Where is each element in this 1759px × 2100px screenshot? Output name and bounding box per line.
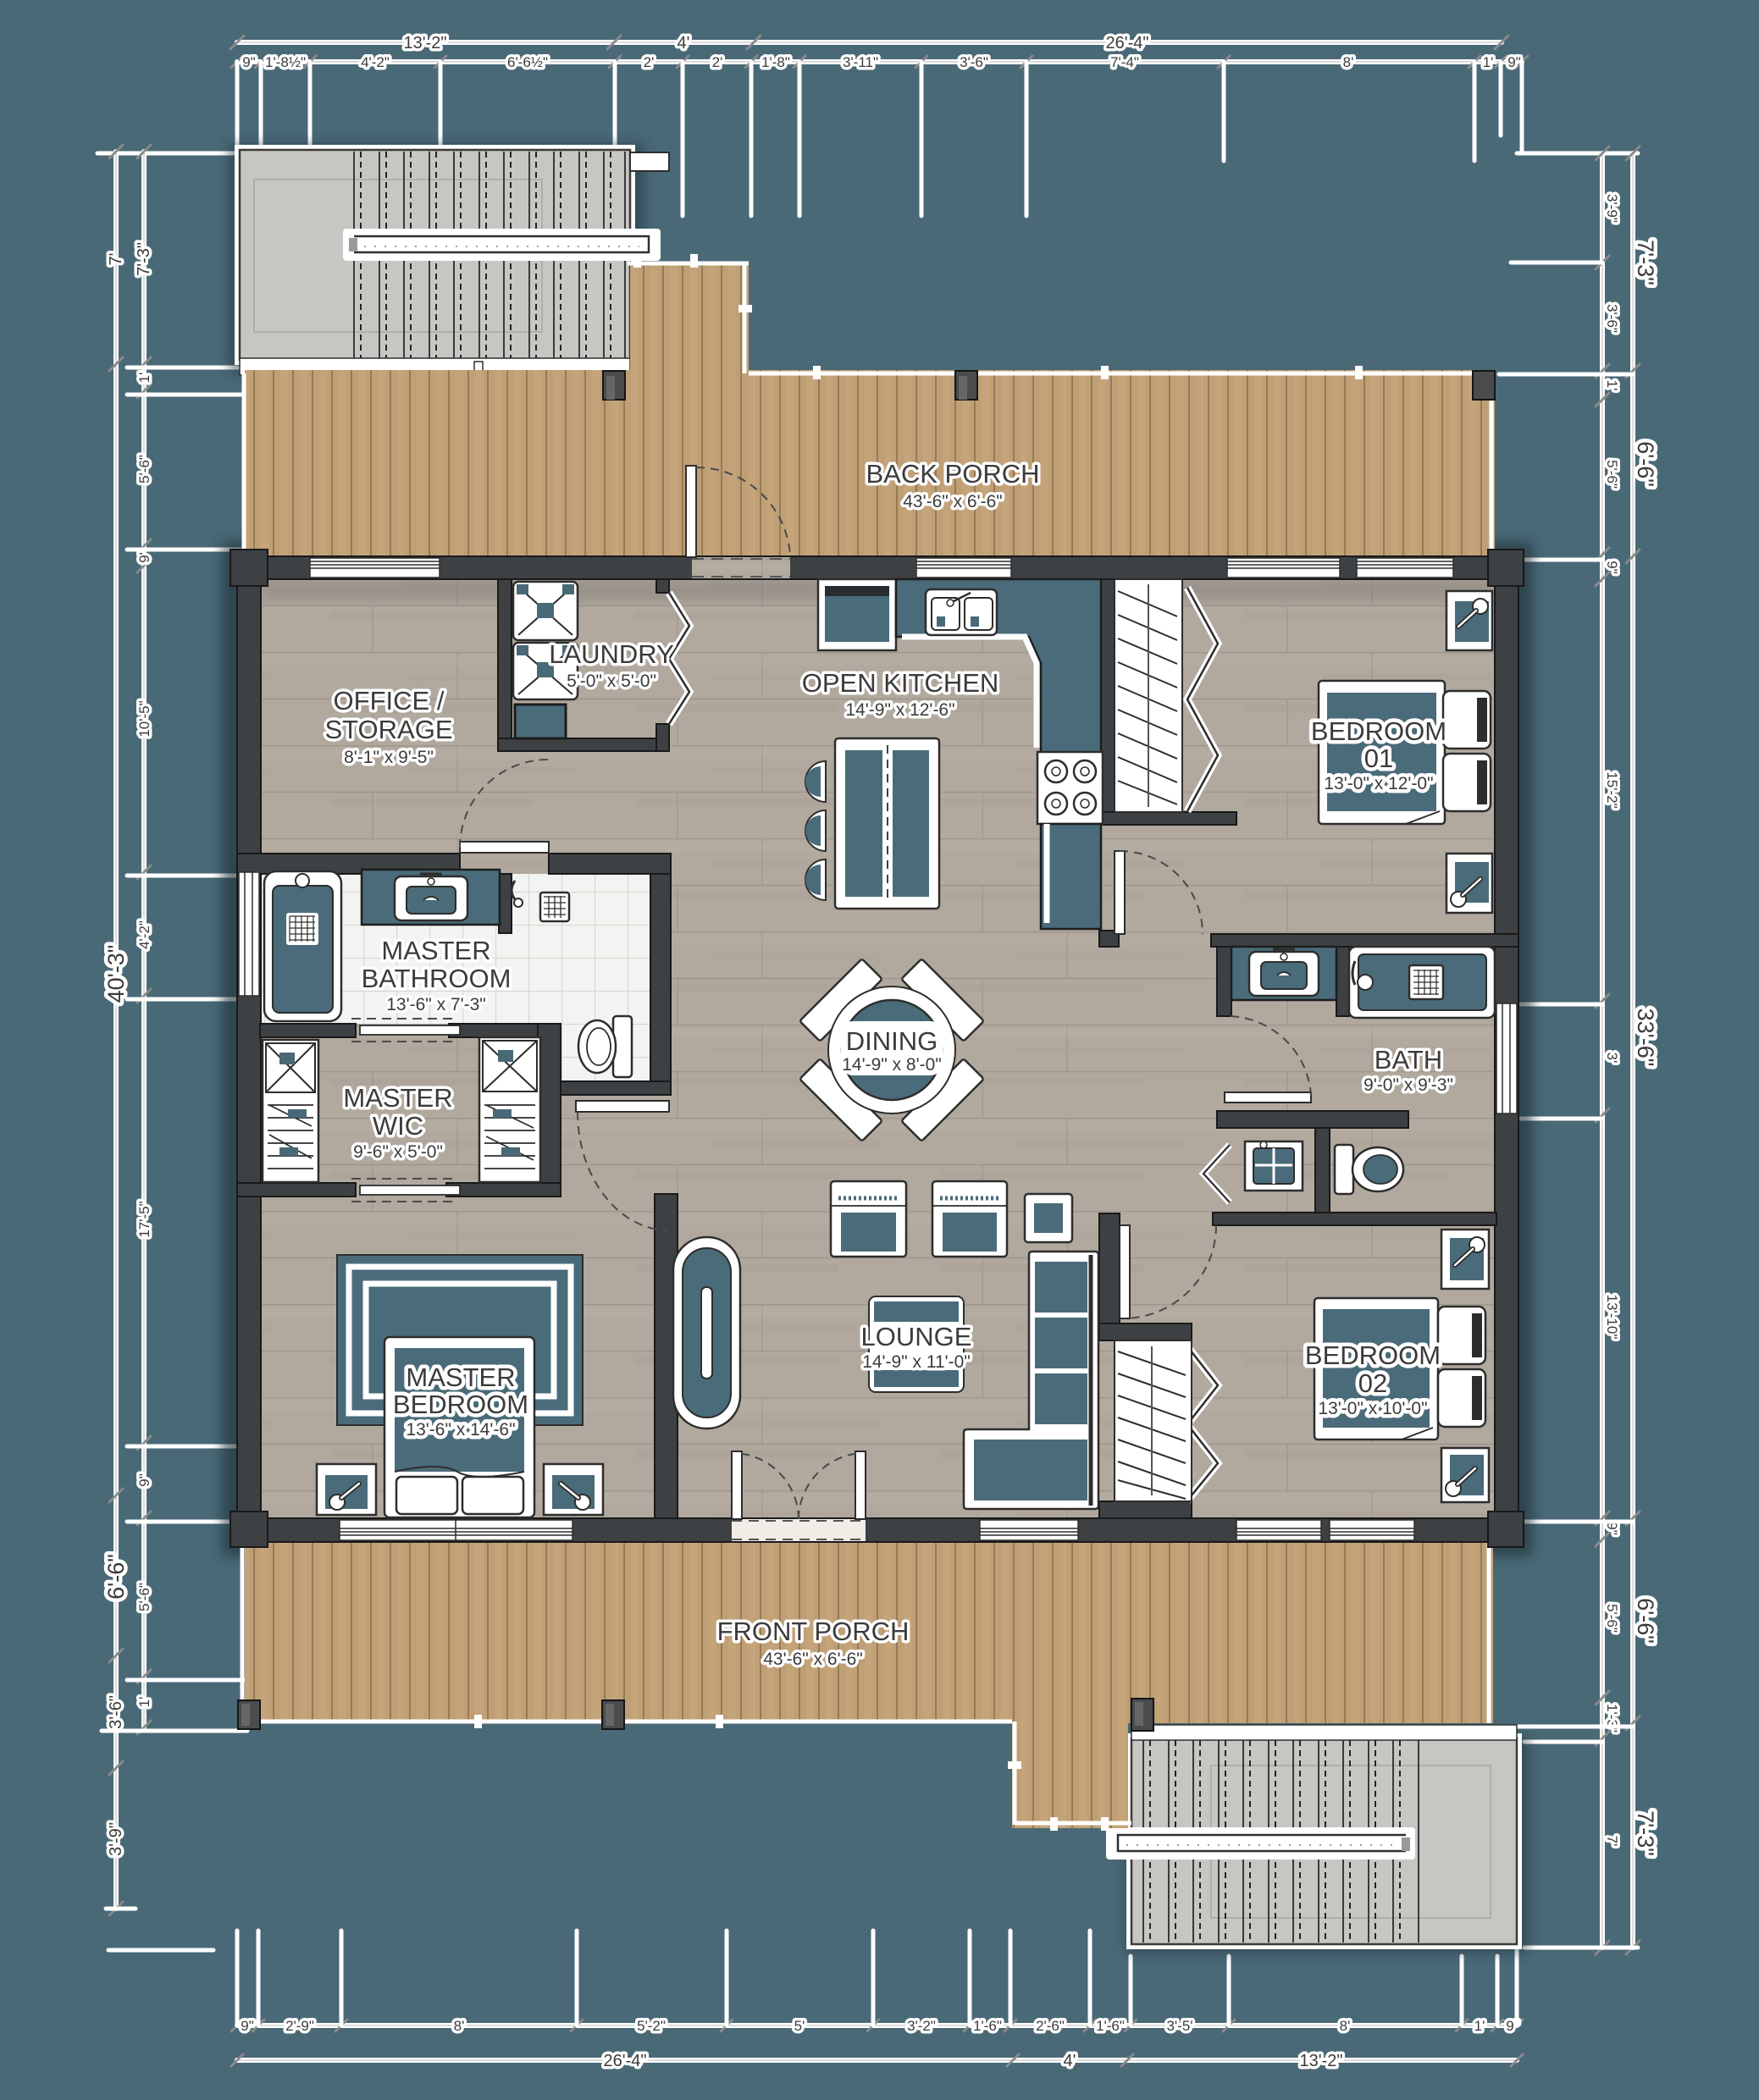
svg-text:3': 3' bbox=[1604, 1053, 1620, 1064]
svg-text:DINING: DINING bbox=[846, 1026, 938, 1056]
svg-text:43'-6" x 6'-6": 43'-6" x 6'-6" bbox=[763, 1650, 862, 1669]
svg-text:9": 9" bbox=[136, 550, 152, 563]
svg-text:OPEN KITCHEN: OPEN KITCHEN bbox=[802, 668, 999, 698]
svg-text:13'-10": 13'-10" bbox=[1604, 1295, 1620, 1340]
svg-text:BATH: BATH bbox=[1375, 1045, 1442, 1075]
svg-text:5'-0" x 5'-0": 5'-0" x 5'-0" bbox=[567, 671, 656, 691]
svg-text:13'-0" x 10'-0": 13'-0" x 10'-0" bbox=[1318, 1399, 1427, 1418]
svg-text:4': 4' bbox=[678, 34, 690, 52]
svg-text:3'-2": 3'-2" bbox=[907, 2018, 936, 2034]
svg-text:8': 8' bbox=[1343, 54, 1354, 70]
svg-text:1'-8": 1'-8" bbox=[761, 54, 790, 70]
svg-text:1'-8½": 1'-8½" bbox=[265, 54, 306, 70]
svg-text:6'-6": 6'-6" bbox=[103, 1554, 129, 1600]
svg-text:3'-11": 3'-11" bbox=[843, 54, 878, 70]
svg-text:STORAGE: STORAGE bbox=[324, 715, 452, 744]
svg-text:3'-5': 3'-5' bbox=[1166, 2018, 1192, 2034]
svg-text:2': 2' bbox=[644, 54, 655, 70]
svg-text:3'-6": 3'-6" bbox=[107, 1695, 125, 1729]
svg-text:8'-1" x 9'-5": 8'-1" x 9'-5" bbox=[344, 748, 434, 767]
svg-text:6'-6½": 6'-6½" bbox=[507, 54, 548, 70]
svg-text:OFFICE /: OFFICE / bbox=[334, 686, 445, 716]
svg-text:3'-6": 3'-6" bbox=[960, 54, 988, 70]
svg-text:BEDROOM: BEDROOM bbox=[393, 1390, 528, 1419]
svg-text:4'-2": 4'-2" bbox=[136, 920, 152, 949]
svg-text:7': 7' bbox=[1604, 1836, 1620, 1847]
svg-text:5': 5' bbox=[794, 2018, 805, 2034]
svg-text:7'-4": 7'-4" bbox=[1110, 54, 1139, 70]
svg-text:6'-6": 6'-6" bbox=[1633, 441, 1658, 487]
svg-text:WIC: WIC bbox=[373, 1111, 423, 1141]
svg-text:1': 1' bbox=[136, 1697, 152, 1708]
svg-text:LOUNGE: LOUNGE bbox=[861, 1322, 972, 1351]
svg-text:6'-6": 6'-6" bbox=[1633, 1598, 1658, 1644]
svg-text:1': 1' bbox=[1604, 380, 1620, 391]
svg-text:BEDROOM: BEDROOM bbox=[1305, 1340, 1441, 1370]
svg-text:9'-6" x 5'-0": 9'-6" x 5'-0" bbox=[353, 1142, 443, 1162]
svg-text:BATHROOM: BATHROOM bbox=[362, 964, 512, 993]
svg-text:2'-6": 2'-6" bbox=[1036, 2018, 1065, 2034]
svg-text:9": 9" bbox=[241, 2018, 254, 2034]
svg-text:LAUNDRY: LAUNDRY bbox=[549, 639, 674, 669]
svg-text:7'-3": 7'-3" bbox=[1633, 1810, 1658, 1856]
svg-text:1'-6": 1'-6" bbox=[1096, 2018, 1125, 2034]
svg-text:FRONT PORCH: FRONT PORCH bbox=[717, 1616, 910, 1646]
svg-text:9": 9" bbox=[1604, 1522, 1620, 1535]
svg-text:13'-2": 13'-2" bbox=[1300, 2052, 1343, 2070]
svg-text:7': 7' bbox=[107, 253, 125, 266]
svg-text:5'-2": 5'-2" bbox=[637, 2018, 666, 2034]
svg-text:9": 9" bbox=[136, 1473, 152, 1487]
svg-text:3'-9": 3'-9" bbox=[1604, 194, 1620, 223]
svg-text:5'-6": 5'-6" bbox=[1604, 460, 1620, 489]
svg-text:BACK PORCH: BACK PORCH bbox=[866, 459, 1040, 489]
svg-text:5'-6": 5'-6" bbox=[136, 455, 152, 484]
svg-text:MASTER: MASTER bbox=[343, 1083, 452, 1113]
svg-text:9": 9" bbox=[242, 54, 256, 70]
svg-text:14'-9" x 11'-0": 14'-9" x 11'-0" bbox=[862, 1352, 971, 1372]
svg-text:7'-3": 7'-3" bbox=[135, 242, 153, 276]
svg-text:02: 02 bbox=[1358, 1368, 1387, 1398]
svg-text:1': 1' bbox=[1474, 2018, 1485, 2034]
svg-text:43'-6" x 6'-6": 43'-6" x 6'-6" bbox=[903, 492, 1002, 511]
svg-text:13'-2": 13'-2" bbox=[404, 34, 447, 52]
svg-text:5'-6": 5'-6" bbox=[1604, 1604, 1620, 1633]
svg-text:4': 4' bbox=[1064, 2052, 1076, 2070]
svg-text:2': 2' bbox=[712, 54, 723, 70]
svg-text:13'-6" x 14'-6": 13'-6" x 14'-6" bbox=[406, 1420, 515, 1440]
svg-text:01: 01 bbox=[1364, 743, 1393, 773]
svg-text:1'-6": 1'-6" bbox=[973, 2018, 1002, 2034]
svg-text:26'-4": 26'-4" bbox=[1106, 34, 1149, 52]
svg-text:14'-9" x 12'-6": 14'-9" x 12'-6" bbox=[845, 700, 954, 720]
svg-text:3'-6": 3'-6" bbox=[1604, 304, 1620, 333]
svg-text:8': 8' bbox=[454, 2018, 465, 2034]
svg-text:1': 1' bbox=[1483, 54, 1494, 70]
svg-text:9": 9" bbox=[1507, 54, 1521, 70]
svg-text:33'-6": 33'-6" bbox=[1633, 1009, 1658, 1067]
svg-text:10'-5": 10'-5" bbox=[136, 700, 152, 737]
svg-text:26'-4": 26'-4" bbox=[604, 2052, 647, 2070]
svg-text:15'-2": 15'-2" bbox=[1604, 771, 1620, 808]
svg-text:14'-9" x 8'-0": 14'-9" x 8'-0" bbox=[842, 1055, 941, 1075]
svg-text:5'-6": 5'-6" bbox=[136, 1583, 152, 1611]
svg-text:4'-2": 4'-2" bbox=[361, 54, 390, 70]
svg-text:7'-3": 7'-3" bbox=[1633, 240, 1658, 285]
svg-text:9'-0" x 9'-3": 9'-0" x 9'-3" bbox=[1364, 1075, 1453, 1095]
svg-text:MASTER: MASTER bbox=[381, 936, 490, 965]
svg-text:BEDROOM: BEDROOM bbox=[1311, 716, 1446, 746]
svg-text:40'-3": 40'-3" bbox=[103, 945, 129, 1003]
svg-text:2'-9": 2'-9" bbox=[285, 2018, 314, 2034]
svg-text:MASTER: MASTER bbox=[406, 1362, 515, 1392]
svg-text:8': 8' bbox=[1340, 2018, 1351, 2034]
svg-text:3'-9": 3'-9" bbox=[107, 1822, 125, 1856]
svg-text:1': 1' bbox=[136, 373, 152, 384]
svg-text:9": 9" bbox=[1604, 561, 1620, 574]
svg-text:13'-6" x 7'-3": 13'-6" x 7'-3" bbox=[386, 995, 485, 1014]
svg-text:17'-5": 17'-5" bbox=[136, 1201, 152, 1237]
svg-text:13'-0" x 12'-0": 13'-0" x 12'-0" bbox=[1324, 774, 1433, 793]
